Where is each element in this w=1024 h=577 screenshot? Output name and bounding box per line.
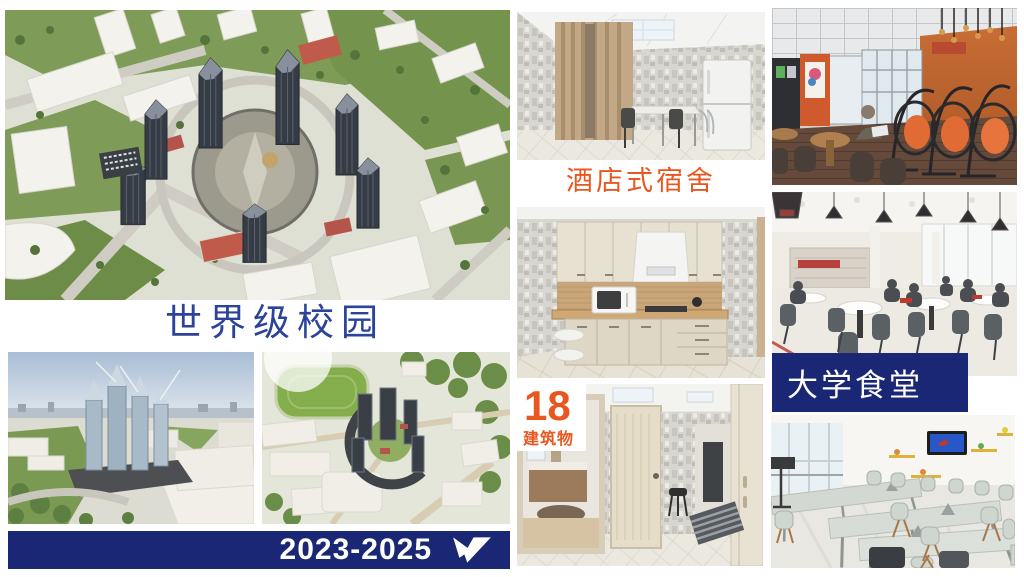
buildings-count: 18 [517, 384, 586, 425]
buildings-count-label: 建筑物 [517, 425, 586, 449]
canteen-banner: 大学食堂 [772, 353, 968, 412]
photo-campus-cafe-lounge [772, 8, 1017, 185]
canteen-tables-illustration [771, 415, 1015, 568]
slide-collage: 世界级校园 [0, 0, 1024, 577]
lower-cabinets [554, 319, 727, 365]
photo-canteen-tables-room [771, 415, 1015, 568]
fridge [703, 60, 751, 150]
photo-campus-skyline-render [8, 352, 254, 524]
wardrobe [731, 384, 763, 566]
photo-canteen-hall [772, 192, 1017, 376]
cafe-lounge-illustration [772, 8, 1017, 185]
wing-check-logo-icon [450, 534, 494, 566]
upper-cabinets [557, 222, 722, 282]
dorm-room-illustration [517, 12, 765, 160]
photo-campus-topview-render [262, 352, 510, 524]
photo-dorm-kitchen [517, 207, 765, 378]
campus-skyline-illustration [8, 352, 254, 524]
years-text: 2023-2025 [280, 533, 432, 567]
canteen-caption: 大学食堂 [787, 360, 923, 405]
dorm-kitchen-illustration [517, 207, 765, 378]
tv-screen [927, 431, 967, 455]
canteen-hall-illustration [772, 192, 1017, 376]
campus-caption: 世界级校园 [0, 297, 516, 349]
years-banner: 2023-2025 [8, 531, 510, 569]
campus-aerial-illustration [5, 10, 510, 300]
photo-dorm-room [517, 12, 765, 160]
photo-campus-aerial-render [5, 10, 510, 300]
microwave [592, 287, 636, 313]
buildings-count-badge: 18 建筑物 [517, 384, 586, 451]
campus-topview-illustration [262, 352, 510, 524]
dorm-caption: 酒店式宿舍 [517, 158, 765, 206]
corridor-door [611, 406, 661, 548]
